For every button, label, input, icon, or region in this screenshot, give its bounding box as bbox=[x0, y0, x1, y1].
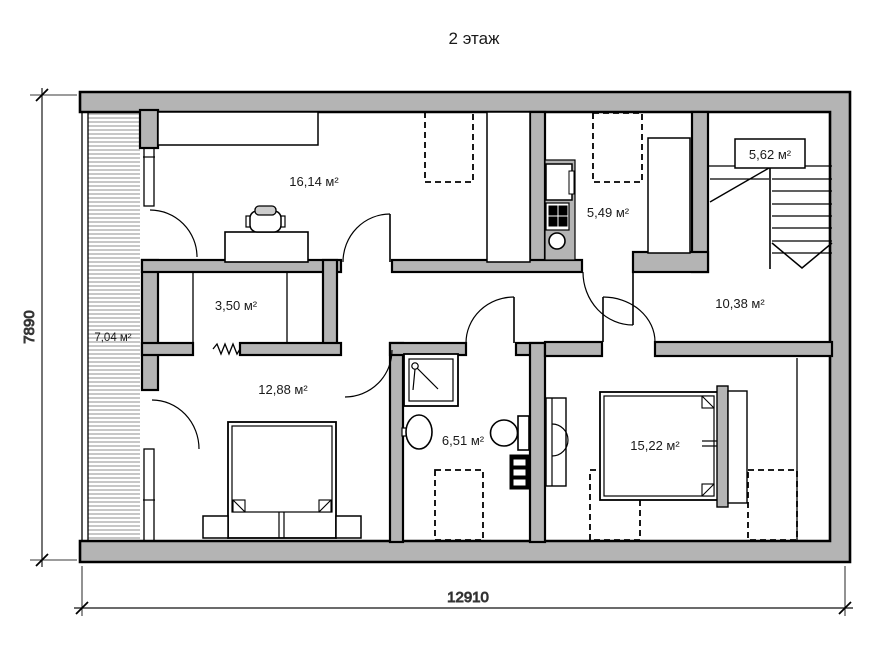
bedroom1-furniture bbox=[203, 422, 361, 538]
chair bbox=[246, 206, 285, 232]
stair-direction-arrow bbox=[772, 243, 832, 268]
room-label-hallway: 10,38 м² bbox=[715, 296, 765, 311]
dressing-table bbox=[546, 398, 568, 486]
dim-width-label: 12910 bbox=[447, 589, 489, 606]
door-arc bbox=[583, 272, 633, 325]
wardrobe bbox=[158, 112, 318, 145]
wall-study-kitchen bbox=[530, 112, 545, 262]
study-furniture bbox=[158, 112, 530, 262]
skylight-window bbox=[425, 112, 473, 182]
floor-plan-drawing: 2 этаж bbox=[0, 0, 887, 649]
door-arc bbox=[345, 350, 392, 397]
dimension-vertical: 7890 bbox=[21, 88, 77, 567]
wall-bedroom2-top-b bbox=[655, 342, 832, 356]
balcony-strip bbox=[82, 112, 140, 541]
bedside-shelf bbox=[728, 391, 747, 503]
dim-height-label: 7890 bbox=[21, 310, 38, 343]
room-label-stairs: 5,62 м² bbox=[749, 147, 792, 162]
shower bbox=[404, 354, 458, 406]
bed-headboard bbox=[717, 386, 728, 507]
room-label-bedroom1: 12,88 м² bbox=[258, 382, 308, 397]
room-label-study: 16,14 м² bbox=[289, 174, 339, 189]
tall-cabinet bbox=[648, 138, 690, 253]
wall-closet-right bbox=[323, 260, 337, 345]
wall-bath-left bbox=[390, 343, 403, 542]
stair-break-line bbox=[710, 168, 769, 202]
room-label-balcony: 7,04 м² bbox=[94, 332, 131, 344]
room-label-closet: 3,50 м² bbox=[215, 298, 258, 313]
wall-balcony-stub bbox=[140, 110, 158, 148]
wall-kitchen-stairs bbox=[692, 112, 708, 272]
nightstand bbox=[203, 516, 228, 538]
wall-bath-right bbox=[530, 343, 545, 542]
bathroom-fixtures bbox=[402, 354, 529, 489]
room-label-kitchen: 5,49 м² bbox=[587, 205, 630, 220]
desk bbox=[225, 232, 308, 262]
stove bbox=[546, 203, 569, 230]
wall-closet-bottom-b bbox=[240, 343, 341, 355]
page-title: 2 этаж bbox=[449, 29, 501, 48]
double-bed bbox=[228, 422, 336, 538]
dimension-horizontal: 12910 bbox=[74, 566, 853, 616]
door-arc bbox=[152, 400, 199, 449]
floor-plan-page: 2 этаж bbox=[0, 0, 887, 649]
door-arc bbox=[466, 297, 514, 343]
door-arc bbox=[343, 214, 390, 262]
wall-closet-bottom-a bbox=[142, 343, 193, 355]
skylight-window bbox=[435, 470, 483, 540]
wall-kitchen-bottom bbox=[633, 252, 708, 272]
skylight-window bbox=[748, 470, 797, 540]
wall-bedroom2-top-a bbox=[545, 342, 602, 356]
fridge-handle bbox=[569, 171, 574, 194]
fridge bbox=[546, 164, 572, 200]
room-label-bathroom: 6,51 м² bbox=[442, 433, 485, 448]
skylight-window bbox=[593, 113, 642, 182]
towel-radiator bbox=[510, 455, 529, 489]
kitchen-sink bbox=[549, 233, 565, 249]
wall-balcony-mid bbox=[142, 260, 158, 390]
nightstand bbox=[336, 516, 361, 538]
toilet bbox=[491, 416, 530, 450]
washbasin bbox=[402, 415, 432, 449]
room-label-bedroom2: 15,22 м² bbox=[630, 438, 680, 453]
wall-break-zigzag bbox=[213, 344, 240, 354]
wardrobe bbox=[487, 112, 530, 262]
door-arc bbox=[150, 210, 197, 257]
